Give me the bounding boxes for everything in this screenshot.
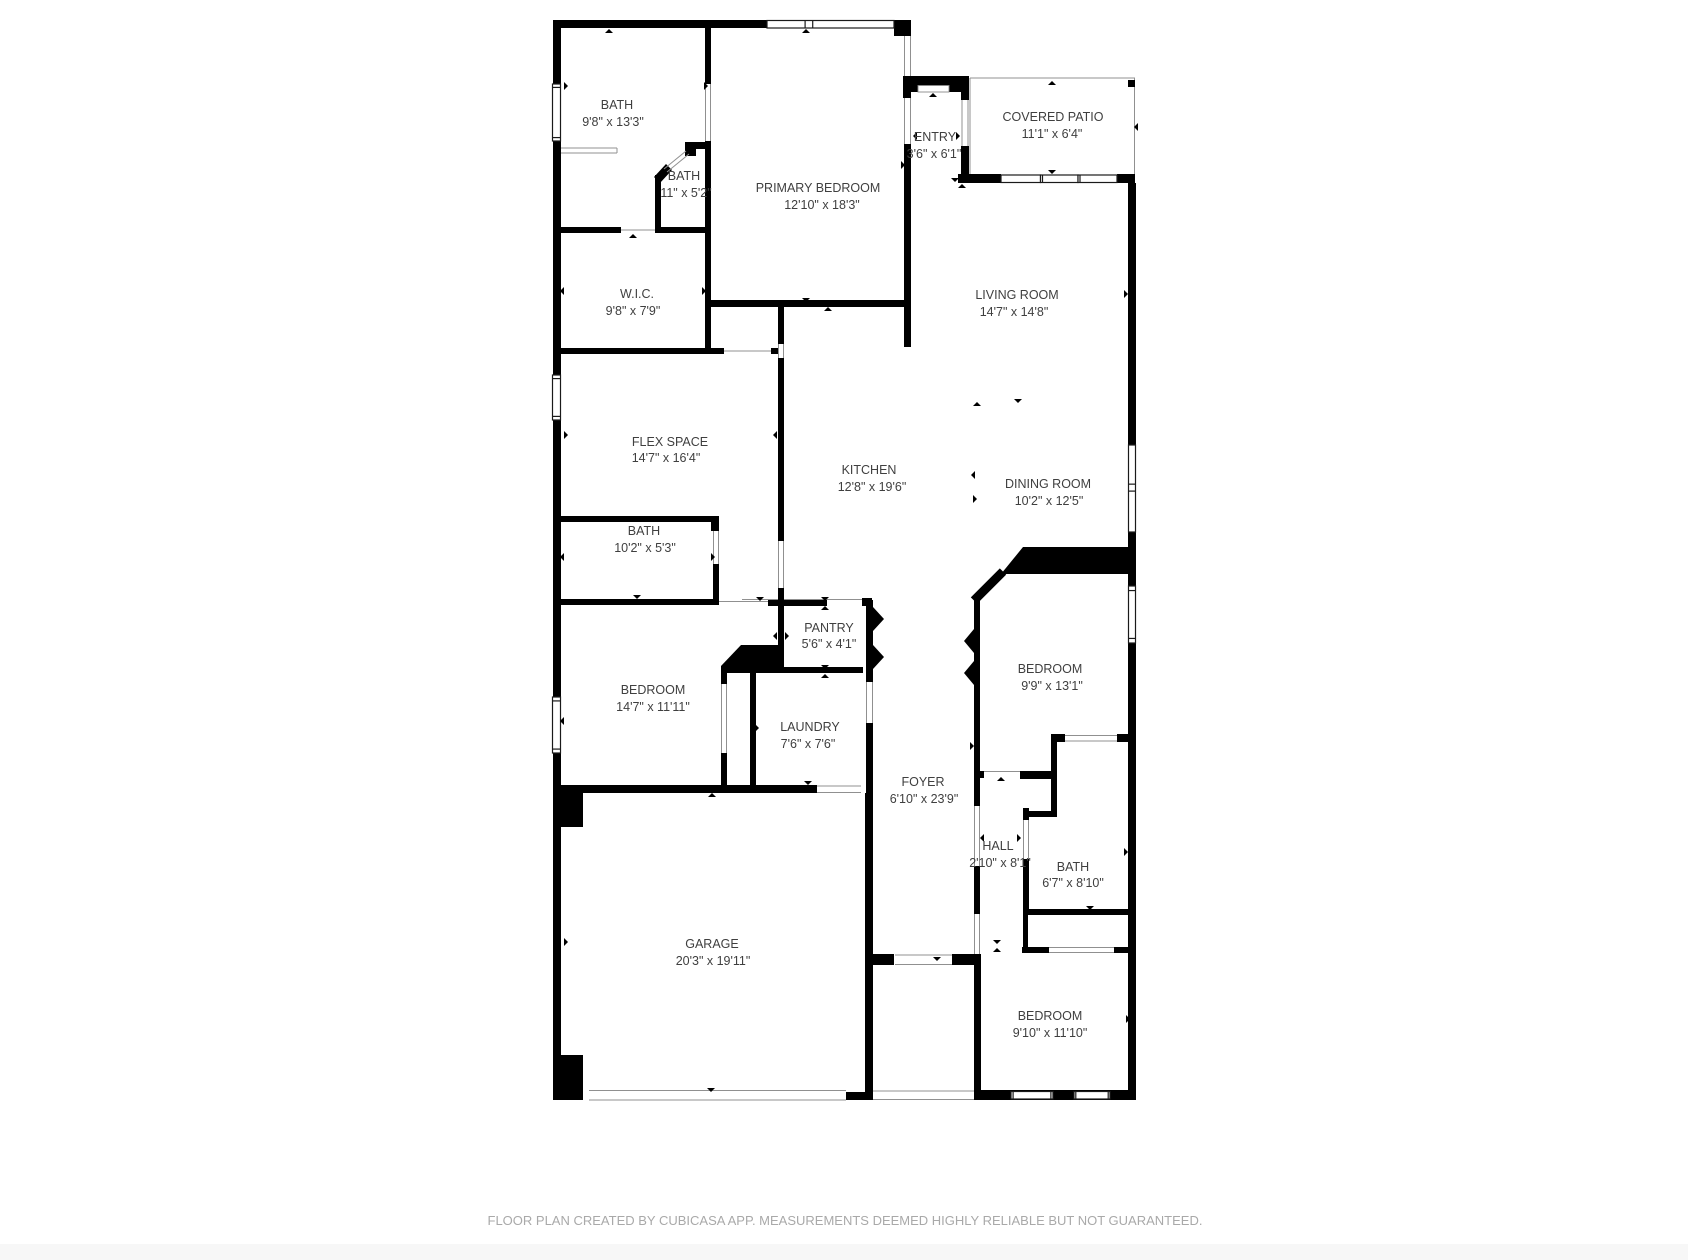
- svg-text:PANTRY: PANTRY: [804, 621, 854, 635]
- svg-text:14'7" x 16'4": 14'7" x 16'4": [632, 451, 701, 465]
- svg-text:2'10" x 8'1": 2'10" x 8'1": [969, 856, 1031, 870]
- svg-text:7'6" x 7'6": 7'6" x 7'6": [781, 737, 836, 751]
- svg-text:LAUNDRY: LAUNDRY: [780, 720, 840, 734]
- svg-text:11" x 5'2": 11" x 5'2": [660, 186, 711, 200]
- svg-text:9'8" x 7'9": 9'8" x 7'9": [606, 304, 661, 318]
- svg-text:5'6" x 4'1": 5'6" x 4'1": [802, 637, 857, 651]
- svg-text:20'3" x 19'11": 20'3" x 19'11": [676, 954, 751, 968]
- svg-text:14'7" x 11'11": 14'7" x 11'11": [616, 700, 690, 714]
- svg-text:9'8" x 13'3": 9'8" x 13'3": [582, 115, 644, 129]
- svg-text:FOYER: FOYER: [901, 775, 944, 789]
- svg-text:10'2" x 5'3": 10'2" x 5'3": [614, 541, 676, 555]
- svg-text:10'2" x 12'5": 10'2" x 12'5": [1015, 494, 1084, 508]
- svg-text:BATH: BATH: [1057, 860, 1089, 874]
- svg-text:BEDROOM: BEDROOM: [1018, 662, 1083, 676]
- svg-text:BEDROOM: BEDROOM: [621, 683, 686, 697]
- svg-text:14'7" x 14'8": 14'7" x 14'8": [980, 305, 1049, 319]
- svg-text:BATH: BATH: [601, 98, 633, 112]
- svg-text:FLEX SPACE: FLEX SPACE: [632, 435, 708, 449]
- svg-text:9'9" x 13'1": 9'9" x 13'1": [1021, 679, 1083, 693]
- svg-text:DINING ROOM: DINING ROOM: [1005, 477, 1091, 491]
- svg-text:9'10" x 11'10": 9'10" x 11'10": [1013, 1026, 1088, 1040]
- svg-text:6'7" x 8'10": 6'7" x 8'10": [1042, 876, 1104, 890]
- svg-text:12'10" x 18'3": 12'10" x 18'3": [784, 198, 860, 212]
- svg-text:PRIMARY BEDROOM: PRIMARY BEDROOM: [756, 181, 881, 195]
- svg-text:KITCHEN: KITCHEN: [842, 463, 897, 477]
- svg-text:11'1" x 6'4": 11'1" x 6'4": [1022, 127, 1083, 141]
- svg-text:BATH: BATH: [668, 169, 700, 183]
- svg-text:BEDROOM: BEDROOM: [1018, 1009, 1083, 1023]
- svg-text:HALL: HALL: [982, 839, 1013, 853]
- svg-text:W.I.C.: W.I.C.: [620, 287, 654, 301]
- svg-text:GARAGE: GARAGE: [685, 937, 739, 951]
- svg-text:3'6" x 6'1": 3'6" x 6'1": [907, 147, 962, 161]
- svg-text:COVERED PATIO: COVERED PATIO: [1003, 110, 1104, 124]
- svg-text:BATH: BATH: [628, 524, 660, 538]
- svg-text:LIVING ROOM: LIVING ROOM: [975, 288, 1058, 302]
- svg-text:ENTRY: ENTRY: [914, 130, 957, 144]
- svg-text:6'10" x 23'9": 6'10" x 23'9": [890, 792, 959, 806]
- svg-text:12'8" x 19'6": 12'8" x 19'6": [838, 480, 907, 494]
- svg-text:FLOOR PLAN CREATED BY CUBICASA: FLOOR PLAN CREATED BY CUBICASA APP. MEAS…: [488, 1213, 1203, 1228]
